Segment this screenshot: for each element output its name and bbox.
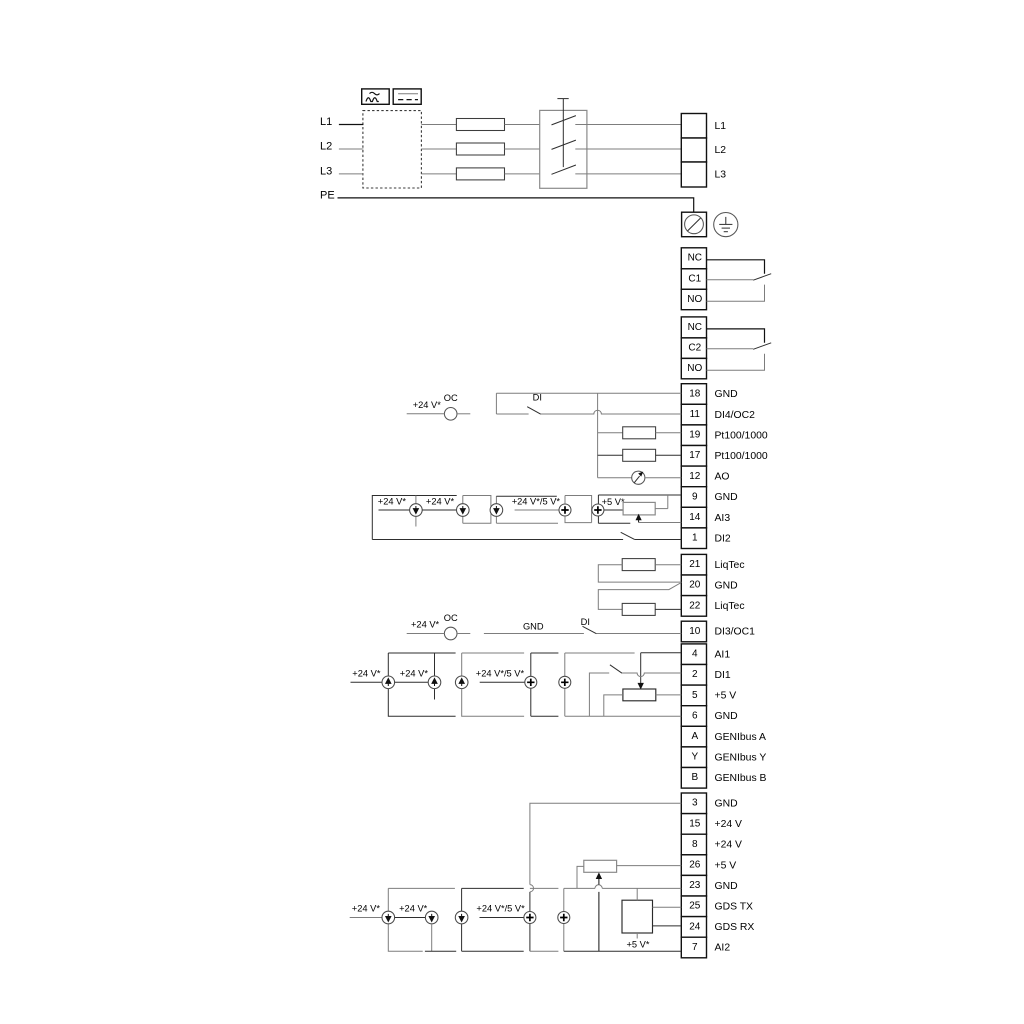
svg-text:GND: GND — [715, 389, 738, 400]
svg-text:+24 V*/5 V*: +24 V*/5 V* — [476, 669, 525, 679]
svg-text:+24 V*: +24 V* — [413, 400, 442, 410]
svg-text:2: 2 — [692, 669, 698, 680]
svg-text:GND: GND — [715, 711, 738, 722]
svg-text:DI: DI — [533, 393, 542, 403]
svg-text:Pt100/1000: Pt100/1000 — [715, 430, 768, 441]
svg-text:L2: L2 — [715, 145, 727, 156]
svg-text:AI2: AI2 — [715, 943, 731, 954]
svg-text:20: 20 — [689, 580, 701, 591]
svg-text:Y: Y — [691, 752, 698, 763]
svg-text:L1: L1 — [320, 116, 332, 128]
svg-text:+24 V*/5 V*: +24 V*/5 V* — [476, 904, 525, 914]
svg-text:19: 19 — [689, 430, 701, 441]
svg-text:C2: C2 — [688, 343, 701, 354]
svg-text:9: 9 — [692, 491, 698, 502]
svg-text:4: 4 — [692, 649, 698, 660]
svg-text:+24 V*: +24 V* — [399, 904, 428, 914]
svg-text:DI2: DI2 — [715, 533, 731, 544]
svg-text:L3: L3 — [715, 170, 727, 181]
svg-text:8: 8 — [692, 839, 698, 850]
svg-text:GDS TX: GDS TX — [715, 902, 754, 913]
svg-text:14: 14 — [689, 512, 701, 523]
svg-text:15: 15 — [689, 818, 701, 829]
svg-text:26: 26 — [689, 860, 701, 871]
svg-text:AI1: AI1 — [715, 649, 731, 660]
svg-text:+5 V*: +5 V* — [626, 940, 649, 950]
svg-text:GND: GND — [715, 881, 738, 892]
svg-text:+24 V*: +24 V* — [411, 620, 440, 630]
svg-text:GND: GND — [715, 492, 738, 503]
svg-text:+24 V*: +24 V* — [426, 496, 455, 506]
svg-text:L1: L1 — [715, 121, 727, 132]
svg-text:25: 25 — [689, 901, 701, 912]
svg-text:GENIbus Y: GENIbus Y — [715, 752, 767, 763]
svg-text:22: 22 — [689, 600, 701, 611]
svg-text:18: 18 — [689, 388, 701, 399]
svg-text:23: 23 — [689, 880, 701, 891]
svg-text:Pt100/1000: Pt100/1000 — [715, 451, 768, 462]
svg-text:5: 5 — [692, 690, 698, 701]
svg-text:OC: OC — [444, 393, 458, 403]
svg-text:NC: NC — [688, 253, 702, 264]
svg-text:+5 V: +5 V — [715, 691, 737, 702]
svg-text:A: A — [691, 731, 698, 742]
svg-text:+24 V*/5 V*: +24 V*/5 V* — [512, 496, 561, 506]
svg-text:PE: PE — [320, 190, 335, 202]
svg-text:GDS RX: GDS RX — [715, 922, 755, 933]
svg-text:+24 V: +24 V — [715, 819, 743, 830]
svg-text:AI3: AI3 — [715, 513, 731, 524]
svg-text:11: 11 — [690, 409, 701, 420]
svg-text:GND: GND — [715, 581, 738, 592]
svg-text:+24 V*: +24 V* — [352, 904, 381, 914]
svg-text:+5 V*: +5 V* — [602, 497, 625, 507]
svg-text:+24 V: +24 V — [715, 840, 743, 851]
svg-text:C1: C1 — [688, 273, 701, 284]
svg-text:GND: GND — [523, 621, 544, 631]
svg-text:DI4/OC2: DI4/OC2 — [715, 410, 756, 421]
svg-text:DI: DI — [581, 617, 590, 627]
svg-text:12: 12 — [689, 471, 701, 482]
svg-text:NC: NC — [688, 322, 702, 333]
svg-text:+24 V*: +24 V* — [378, 496, 407, 506]
svg-text:LiqTec: LiqTec — [715, 601, 745, 612]
svg-text:3: 3 — [692, 798, 698, 809]
svg-text:+5 V: +5 V — [715, 860, 737, 871]
svg-text:1: 1 — [692, 533, 698, 544]
svg-text:+24 V*: +24 V* — [352, 669, 381, 679]
svg-text:L2: L2 — [320, 140, 332, 152]
svg-text:GENIbus A: GENIbus A — [715, 732, 766, 743]
svg-text:NO: NO — [687, 363, 702, 374]
svg-text:24: 24 — [689, 921, 701, 932]
svg-text:21: 21 — [689, 559, 701, 570]
svg-text:7: 7 — [692, 942, 698, 953]
svg-text:AO: AO — [715, 472, 730, 483]
svg-text:GENIbus B: GENIbus B — [715, 773, 767, 784]
svg-text:B: B — [691, 772, 698, 783]
svg-text:10: 10 — [689, 626, 701, 637]
svg-text:L3: L3 — [320, 165, 332, 177]
svg-text:DI1: DI1 — [715, 670, 731, 681]
svg-text:NO: NO — [687, 294, 702, 305]
svg-text:6: 6 — [692, 710, 698, 721]
svg-text:17: 17 — [689, 450, 701, 461]
svg-text:LiqTec: LiqTec — [715, 560, 745, 571]
svg-text:+24 V*: +24 V* — [400, 669, 429, 679]
svg-text:OC: OC — [444, 613, 458, 623]
svg-text:DI3/OC1: DI3/OC1 — [715, 627, 756, 638]
svg-text:GND: GND — [715, 799, 738, 810]
